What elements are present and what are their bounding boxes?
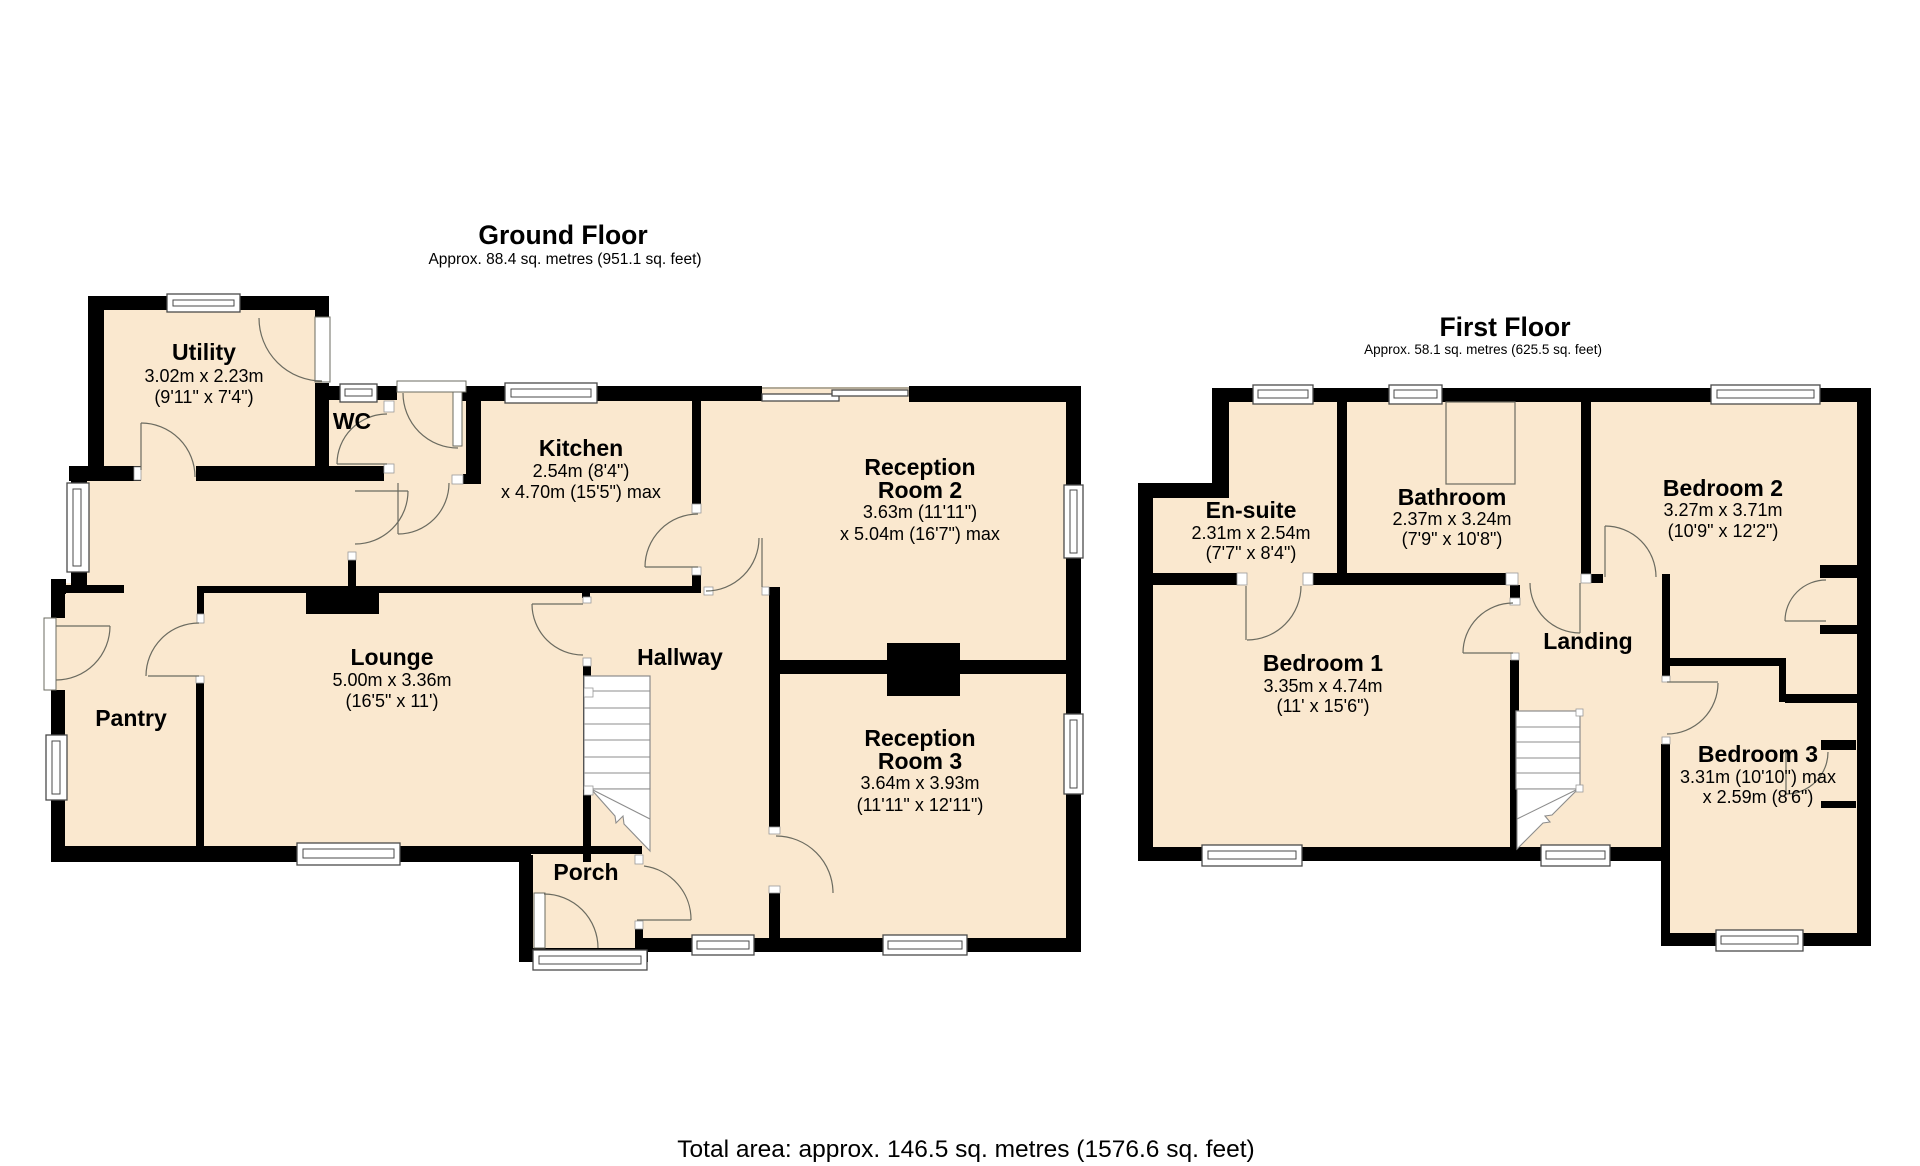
svg-text:3.27m x 3.71m: 3.27m x 3.71m [1663, 500, 1782, 520]
svg-text:Bedroom 2: Bedroom 2 [1663, 475, 1783, 501]
svg-text:(7'7" x 8'4"): (7'7" x 8'4") [1206, 543, 1297, 563]
svg-text:x 2.59m (8'6"): x 2.59m (8'6") [1703, 787, 1814, 807]
svg-text:Room 2: Room 2 [878, 477, 962, 503]
svg-text:Bedroom 3: Bedroom 3 [1698, 741, 1818, 767]
svg-text:Total area: approx. 146.5 sq.: Total area: approx. 146.5 sq. metres (15… [677, 1136, 1254, 1163]
svg-text:2.31m x 2.54m: 2.31m x 2.54m [1191, 523, 1310, 543]
svg-text:3.35m x 4.74m: 3.35m x 4.74m [1263, 676, 1382, 696]
svg-text:Hallway: Hallway [637, 644, 723, 670]
svg-text:Room 3: Room 3 [878, 748, 962, 774]
svg-text:Porch: Porch [553, 859, 618, 885]
svg-text:2.54m (8'4"): 2.54m (8'4") [533, 461, 630, 481]
svg-text:Lounge: Lounge [350, 644, 433, 670]
svg-text:(10'9" x 12'2"): (10'9" x 12'2") [1668, 521, 1779, 541]
svg-text:Pantry: Pantry [95, 705, 167, 731]
svg-text:3.63m (11'11"): 3.63m (11'11") [863, 502, 977, 522]
svg-text:x 4.70m (15'5") max: x 4.70m (15'5") max [501, 482, 661, 502]
svg-text:3.64m x 3.93m: 3.64m x 3.93m [860, 773, 979, 793]
svg-text:Landing: Landing [1543, 628, 1632, 654]
svg-text:(11' x 15'6"): (11' x 15'6") [1277, 696, 1370, 716]
svg-text:(16'5" x 11'): (16'5" x 11') [346, 691, 439, 711]
svg-text:En-suite: En-suite [1206, 497, 1297, 523]
svg-text:Approx. 58.1 sq. metres (625.5: Approx. 58.1 sq. metres (625.5 sq. feet) [1364, 342, 1602, 357]
svg-text:(7'9" x 10'8"): (7'9" x 10'8") [1402, 529, 1503, 549]
svg-text:Ground Floor: Ground Floor [478, 220, 647, 250]
svg-text:Utility: Utility [172, 339, 236, 365]
svg-text:WC: WC [333, 408, 371, 434]
svg-text:First Floor: First Floor [1439, 312, 1570, 342]
svg-text:(9'11" x 7'4"): (9'11" x 7'4") [154, 387, 253, 407]
svg-text:Approx. 88.4 sq. metres (951.1: Approx. 88.4 sq. metres (951.1 sq. feet) [428, 251, 701, 268]
svg-text:2.37m x 3.24m: 2.37m x 3.24m [1392, 509, 1511, 529]
svg-text:Bathroom: Bathroom [1398, 484, 1507, 510]
svg-text:Bedroom 1: Bedroom 1 [1263, 650, 1383, 676]
svg-text:x 5.04m (16'7") max: x 5.04m (16'7") max [840, 524, 1000, 544]
svg-text:(11'11" x 12'11"): (11'11" x 12'11") [857, 795, 984, 815]
svg-text:3.31m (10'10") max: 3.31m (10'10") max [1680, 767, 1836, 787]
svg-text:3.02m x 2.23m: 3.02m x 2.23m [144, 366, 263, 386]
svg-text:Kitchen: Kitchen [539, 435, 623, 461]
svg-text:5.00m x 3.36m: 5.00m x 3.36m [332, 670, 451, 690]
